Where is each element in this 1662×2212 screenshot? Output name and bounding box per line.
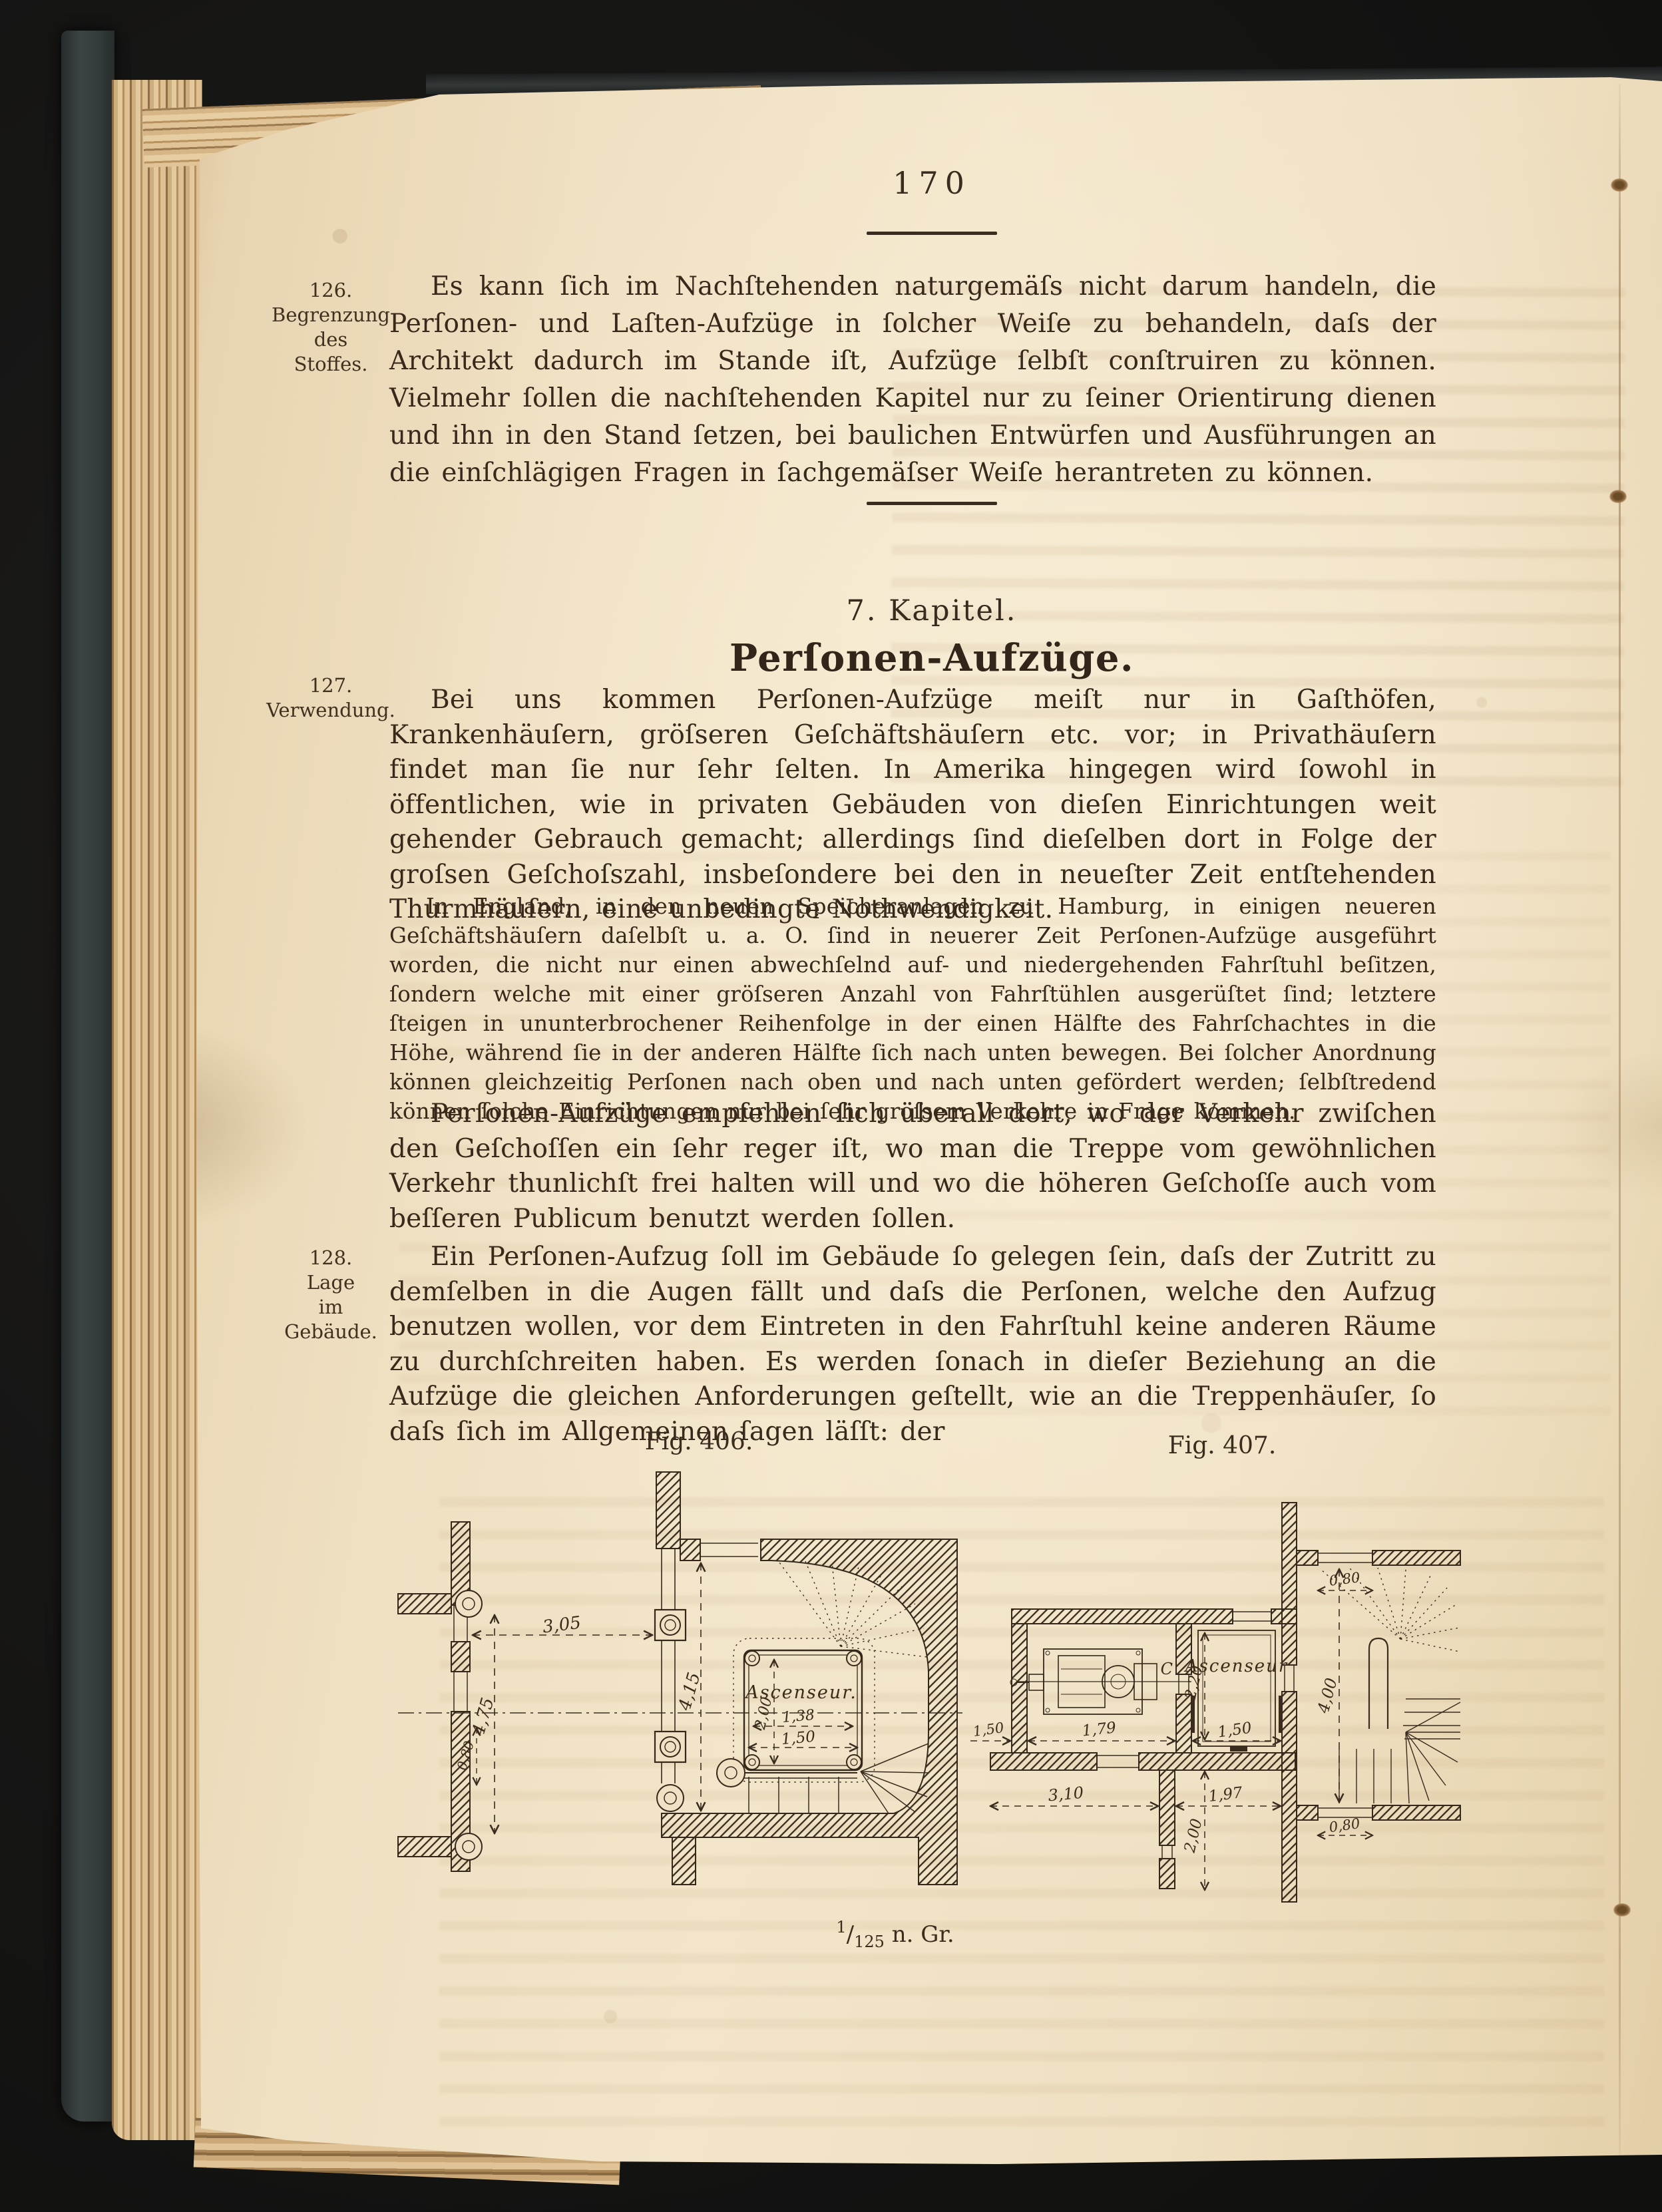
- section-divider-rule: [867, 502, 997, 505]
- margin-note-line: Stoffes.: [251, 352, 411, 377]
- binding-stitch: [1611, 178, 1628, 192]
- margin-note-127: 127. Verwendung.: [251, 673, 411, 723]
- figure-407-caption: Fig. 407.: [1122, 1432, 1322, 1459]
- margin-note-126: 126. Begrenzung des Stoffes.: [251, 278, 411, 377]
- margin-note-line: Lage: [251, 1270, 411, 1295]
- paragraph-126: Es kann ſich im Nachſtehenden naturgemäſ…: [389, 268, 1436, 492]
- figure-407-floor-plan: 0,80 0,80 4,00 1,50 1,79 1,50 2,20 3,10 …: [966, 1503, 1460, 1902]
- book-cover-edge: [61, 31, 114, 2121]
- dim-1-50-shaft: 1,50: [1217, 1720, 1253, 1742]
- dim-2-00: 2,00: [1181, 1817, 1206, 1855]
- machine-label-c: C: [1161, 1660, 1173, 1678]
- dim-1-97: 1,97: [1207, 1784, 1243, 1805]
- scale-separator: /: [847, 1921, 854, 1948]
- gutter-crease: [1619, 84, 1621, 2157]
- handrail-newel: [717, 1759, 857, 1787]
- binding-stitch: [1609, 490, 1627, 503]
- walls-hatched: [398, 1472, 957, 1885]
- dim-1-79: 1,79: [1081, 1719, 1117, 1740]
- margin-note-line: im: [251, 1295, 411, 1320]
- page-number: 170: [832, 165, 1032, 201]
- elevator-shaft-label: Ascenseur.: [743, 1682, 857, 1703]
- dim-1-50-left: 1,50: [972, 1720, 1005, 1740]
- margin-note-line: 128.: [251, 1246, 411, 1270]
- margin-note-128: 128. Lage im Gebäude.: [251, 1246, 411, 1344]
- scale-numerator: 1: [836, 1918, 846, 1936]
- page-stack-fore-edge: [112, 80, 202, 2140]
- paragraph-elevator-placement: Perſonen-Aufzüge empfehlen ſich überall …: [389, 1097, 1436, 1236]
- margin-note-line: des: [251, 327, 411, 352]
- hoisting-machine: [1010, 1649, 1191, 1714]
- chapter-title: Perſonen-Aufzüge.: [389, 636, 1474, 680]
- dim-4-15: 4,15: [675, 1670, 705, 1714]
- book-scan: 170 126. Begrenzung des Stoffes. 127. Ve…: [0, 0, 1662, 2212]
- wall-openings: [454, 1543, 758, 1712]
- dim-1-50: 1,50: [781, 1728, 816, 1748]
- dim-3-05: 3,05: [541, 1613, 582, 1638]
- binding-stitch: [1613, 1903, 1631, 1917]
- paragraph-petit: In England, in den neuen Speicheranlagen…: [389, 892, 1436, 1126]
- dim-1-38: 1,38: [781, 1707, 815, 1726]
- paragraph-127: Bei uns kommen Perſonen-Aufzüge meiſt nu…: [389, 683, 1436, 928]
- book-page: 170 126. Begrenzung des Stoffes. 127. Ve…: [160, 67, 1662, 2186]
- figure-406-caption: Fig. 406.: [599, 1428, 799, 1455]
- margin-note-line: 126.: [251, 278, 411, 303]
- figure-scale-caption: 1/125 n. Gr.: [795, 1918, 995, 1951]
- margin-note-line: Gebäude.: [251, 1320, 411, 1344]
- dim-0-80-top: 0,80: [1328, 1569, 1360, 1589]
- stair-handrail: [1369, 1638, 1388, 1729]
- figure-406-floor-plan: 3,05 4,15 4,75 0,80 2,00 1,38 1,50 Ascen…: [398, 1472, 962, 1886]
- margin-note-line: 127.: [251, 673, 411, 698]
- elevator-shaft-label: Ascenseur: [1184, 1656, 1289, 1676]
- chapter-kicker: 7. Kapitel.: [389, 594, 1474, 628]
- paragraph-128: Ein Perſonen-Aufzug ſoll im Gebäude ſo g…: [389, 1240, 1436, 1449]
- dim-4-00: 4,00: [1314, 1676, 1341, 1716]
- margin-note-line: Begrenzung: [251, 303, 411, 327]
- walls-hatched: [990, 1503, 1460, 1902]
- dim-3-10: 3,10: [1047, 1783, 1084, 1805]
- page-number-rule: [867, 232, 997, 235]
- winder-stair-treads: [1321, 1567, 1460, 1803]
- dim-4-75: 4,75: [469, 1696, 499, 1739]
- scale-denominator: 125: [854, 1933, 885, 1951]
- scale-suffix: n. Gr.: [892, 1921, 954, 1948]
- margin-note-line: Verwendung.: [251, 698, 411, 723]
- dim-0-80-bottom: 0,80: [1328, 1815, 1361, 1835]
